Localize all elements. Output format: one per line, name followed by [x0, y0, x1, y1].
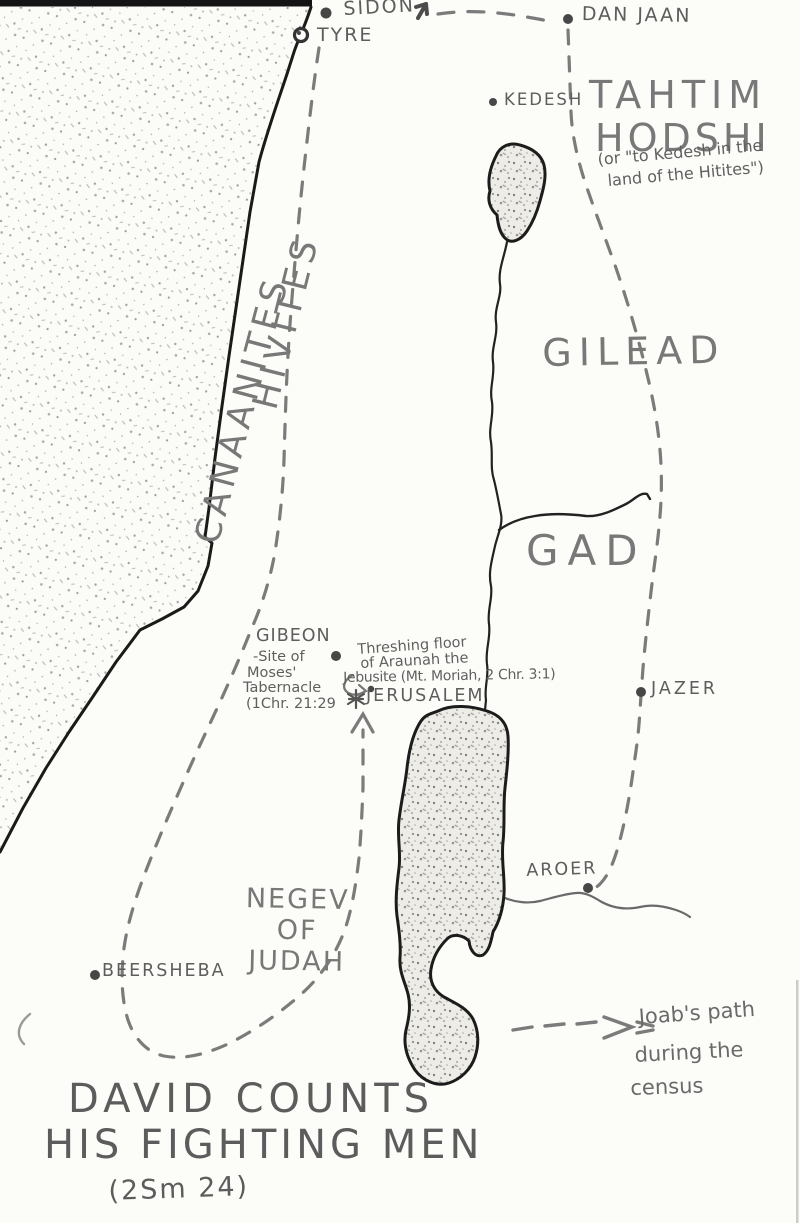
- aroer-dot: [583, 883, 593, 893]
- arnon-river: [505, 893, 690, 917]
- tyre-inner-dot: [297, 31, 301, 35]
- region-negev-label: NEGEV OF JUDAH: [234, 883, 360, 978]
- gibeon-label: GIBEON: [256, 627, 331, 645]
- dead-sea: [396, 706, 508, 1084]
- jerusalem-label: JERUSALEM: [366, 687, 485, 705]
- legend-text-line3: census: [630, 1074, 704, 1099]
- paper-right-edge: [796, 980, 799, 1223]
- jordan-river: [485, 242, 507, 710]
- north-route-arrow-icon: [416, 4, 427, 18]
- paper-top-edge: [0, 0, 312, 7]
- gibeon-note-line2: Moses': [247, 666, 336, 682]
- route-sidon-danjaan: [438, 12, 554, 22]
- beersheba-label: BEERSHEBA: [102, 962, 226, 980]
- kedesh-label: KEDESH: [504, 91, 583, 108]
- region-gad-label: GAD: [526, 529, 647, 573]
- map-title-line1: DAVID COUNTS: [68, 1078, 434, 1120]
- gibeon-note: -Site of Moses' Tabernacle (1Chr. 21:29: [243, 650, 336, 712]
- map-title-line2: HIS FIGHTING MEN: [44, 1124, 483, 1166]
- negev-line3: JUDAH: [234, 945, 359, 978]
- negev-line1: NEGEV: [235, 883, 360, 916]
- tyre-label: TYRE: [317, 26, 373, 46]
- sea-of-galilee: [489, 144, 545, 241]
- beersheba-dot: [90, 970, 100, 980]
- jazer-label: JAZER: [651, 680, 718, 698]
- dan-jaan-dot: [563, 14, 573, 24]
- tyre-ring-marker: [295, 29, 308, 42]
- jazer-dot: [636, 687, 646, 697]
- kedesh-dot: [489, 98, 497, 106]
- legend-route-sample: [513, 1017, 653, 1038]
- negev-line2: OF: [235, 914, 360, 947]
- mediterranean-sea: [0, 7, 311, 852]
- region-gilead-label: GILEAD: [542, 331, 726, 374]
- legend-arrowhead-icon: [604, 1017, 632, 1038]
- legend-text-line2: during the: [634, 1038, 744, 1066]
- jabbok-river: [499, 494, 650, 530]
- pencil-stray-mark: [19, 1014, 30, 1044]
- hand-drawn-bible-map: SIDON TYRE DAN JAAN KEDESH TAHTIM HODSHI…: [0, 0, 800, 1223]
- gibeon-note-line1: -Site of: [253, 650, 336, 666]
- sidon-dot: [321, 8, 332, 19]
- region-tahtim-hodshi-line1: TAHTIM: [589, 76, 767, 116]
- aroer-label: AROER: [526, 860, 598, 881]
- dan-jaan-label: DAN JAAN: [582, 5, 692, 27]
- map-title-line3: (2Sm 24): [108, 1173, 250, 1206]
- gibeon-note-line4: (1Chr. 21:29: [246, 697, 336, 713]
- gibeon-note-line3: Tabernacle: [243, 681, 336, 697]
